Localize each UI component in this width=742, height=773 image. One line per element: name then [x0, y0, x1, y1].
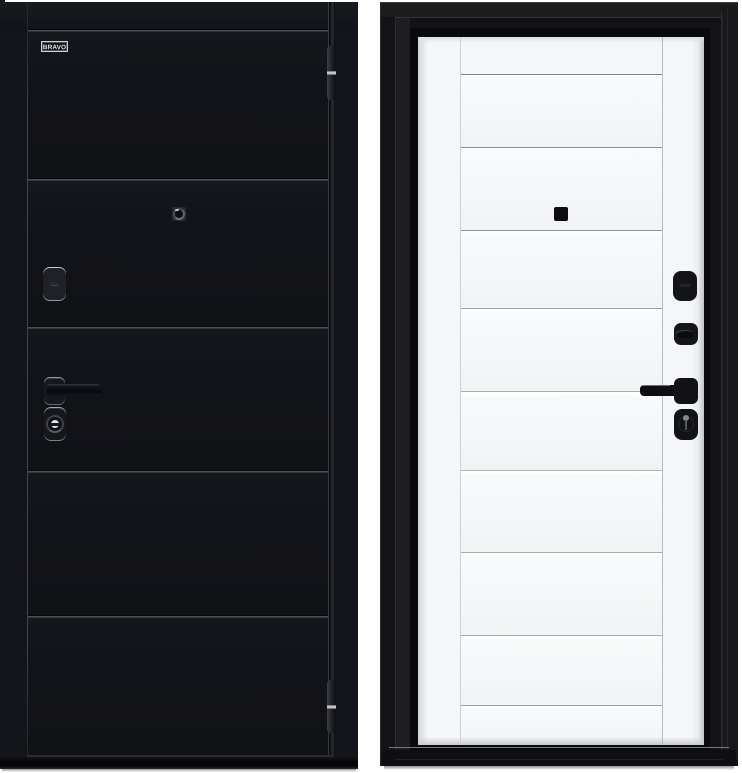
- svg-text:BRAVO: BRAVO: [43, 44, 66, 51]
